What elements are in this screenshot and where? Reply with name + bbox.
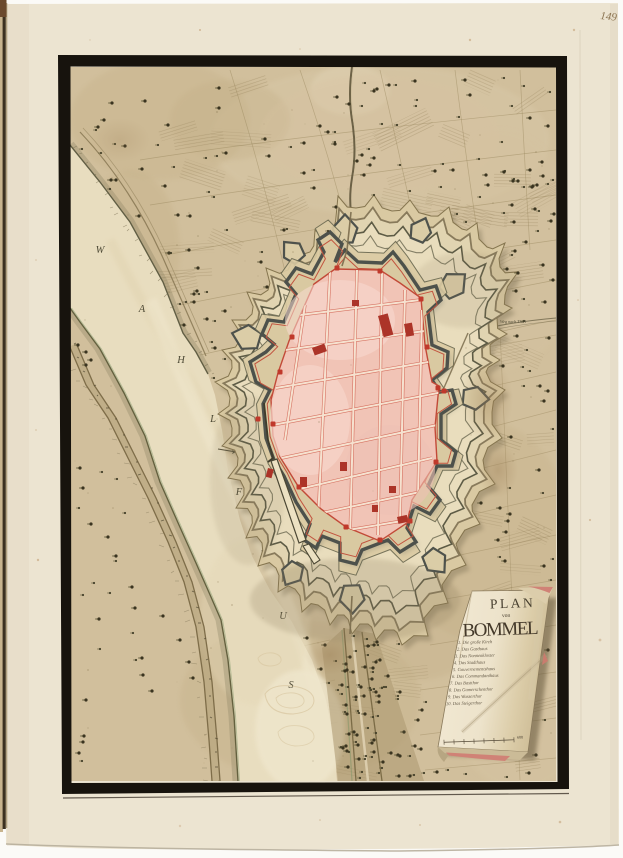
- svg-text:10. Das Steigerthor: 10. Das Steigerthor: [446, 700, 482, 706]
- svg-text:600: 600: [517, 735, 523, 740]
- svg-text:L: L: [209, 414, 216, 425]
- svg-text:BOMMEL: BOMMEL: [462, 618, 539, 642]
- svg-text:2. Das Gasthaus: 2. Das Gasthaus: [457, 646, 488, 652]
- svg-text:9. Das Wasserthor: 9. Das Wasserthor: [448, 693, 482, 699]
- svg-text:W: W: [96, 245, 106, 256]
- svg-text:1. Die große Kirch: 1. Die große Kirch: [458, 639, 493, 645]
- svg-text:H: H: [176, 355, 186, 366]
- svg-text:PLAN: PLAN: [490, 595, 536, 612]
- svg-text:3. Das Nonnenkloster: 3. Das Nonnenkloster: [455, 653, 495, 659]
- svg-text:149: 149: [600, 10, 618, 24]
- svg-text:A: A: [138, 304, 146, 315]
- svg-text:7. Das Bastthor: 7. Das Bastthor: [450, 680, 479, 686]
- svg-text:4. Das Stadthaus: 4. Das Stadthaus: [454, 660, 486, 666]
